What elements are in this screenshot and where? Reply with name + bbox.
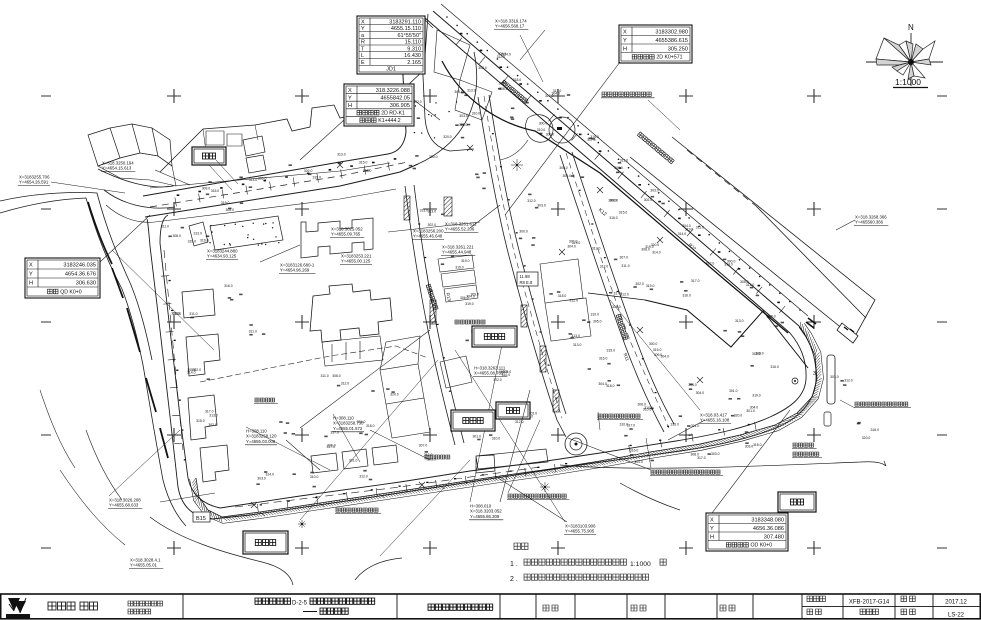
svg-text:X: X bbox=[29, 263, 33, 269]
svg-text:4655.15.110: 4655.15.110 bbox=[391, 26, 421, 32]
svg-text:310.0: 310.0 bbox=[492, 436, 501, 440]
svg-text:302.0: 302.0 bbox=[478, 66, 487, 70]
svg-text:X=3183255.706: X=3183255.706 bbox=[19, 174, 50, 179]
svg-text:Y: Y bbox=[361, 26, 365, 32]
svg-text:312.0: 312.0 bbox=[359, 475, 368, 479]
svg-text:X=3183258.120: X=3183258.120 bbox=[246, 434, 277, 439]
svg-text:LS-22: LS-22 bbox=[948, 613, 965, 619]
svg-text:2017.12: 2017.12 bbox=[945, 600, 967, 606]
svg-text:319.0: 319.0 bbox=[545, 94, 554, 98]
svg-text:R: R bbox=[361, 40, 365, 46]
svg-text:Y=4656.568.17: Y=4656.568.17 bbox=[495, 24, 525, 29]
svg-text:3183348.080: 3183348.080 bbox=[751, 517, 784, 523]
svg-text:311.0: 311.0 bbox=[691, 424, 699, 428]
svg-text:Y=4654.26.591: Y=4654.26.591 bbox=[19, 180, 49, 185]
svg-text:H=308.110: H=308.110 bbox=[333, 415, 354, 420]
svg-text:X: X bbox=[348, 88, 352, 94]
svg-text:H: H bbox=[710, 534, 714, 540]
svg-text:308.0: 308.0 bbox=[559, 166, 568, 170]
svg-text:316.0: 316.0 bbox=[770, 365, 779, 369]
svg-text:X: X bbox=[710, 517, 714, 523]
svg-text:Y: Y bbox=[348, 95, 352, 101]
svg-text:318.0: 318.0 bbox=[459, 123, 468, 127]
svg-text:318.3226.088: 318.3226.088 bbox=[376, 88, 410, 94]
svg-text:11.98: 11.98 bbox=[520, 274, 531, 279]
svg-text:310.0: 310.0 bbox=[752, 352, 761, 356]
svg-text:Y=4655.86.309: Y=4655.86.309 bbox=[470, 514, 500, 519]
svg-text:302.0: 302.0 bbox=[304, 169, 313, 173]
svg-text:311.0: 311.0 bbox=[321, 374, 329, 378]
svg-text:4655386.615: 4655386.615 bbox=[655, 38, 688, 44]
svg-text:K1+444.2: K1+444.2 bbox=[378, 118, 400, 124]
svg-text:X=318.3268.366: X=318.3268.366 bbox=[855, 214, 887, 219]
svg-text:319.0: 319.0 bbox=[752, 393, 761, 397]
svg-text:H=308.010: H=308.010 bbox=[470, 503, 492, 508]
svg-text:307.0: 307.0 bbox=[419, 443, 428, 447]
svg-text:313.0: 313.0 bbox=[735, 319, 744, 323]
svg-text:305.0: 305.0 bbox=[740, 280, 749, 284]
svg-text:1:1000: 1:1000 bbox=[895, 77, 921, 87]
svg-text:2: 2 bbox=[510, 576, 514, 583]
svg-text:320.0: 320.0 bbox=[443, 135, 452, 139]
svg-text:313.0: 313.0 bbox=[620, 158, 629, 162]
svg-text:306.0: 306.0 bbox=[638, 403, 647, 407]
svg-text:X: X bbox=[623, 29, 627, 35]
svg-text:320.0: 320.0 bbox=[734, 414, 743, 418]
svg-text:310.0: 310.0 bbox=[591, 313, 600, 317]
svg-text:309.0: 309.0 bbox=[202, 187, 211, 191]
svg-text:315.0: 315.0 bbox=[196, 419, 205, 423]
svg-text:4654.36.676: 4654.36.676 bbox=[65, 272, 96, 278]
svg-text:316.0: 316.0 bbox=[630, 449, 639, 453]
svg-text:303.0: 303.0 bbox=[257, 476, 266, 480]
svg-text:302.0: 302.0 bbox=[635, 282, 644, 286]
svg-text:319.0: 319.0 bbox=[188, 239, 197, 243]
svg-text:X=3183258.730: X=3183258.730 bbox=[333, 421, 364, 426]
svg-text:310.0: 310.0 bbox=[310, 475, 319, 479]
svg-text:316.0: 316.0 bbox=[599, 356, 608, 360]
svg-text:319.0: 319.0 bbox=[200, 239, 209, 243]
svg-text:302.0: 302.0 bbox=[428, 223, 437, 227]
svg-text:X=318.3028.4.1: X=318.3028.4.1 bbox=[130, 557, 161, 562]
svg-text:319.0: 319.0 bbox=[645, 245, 654, 249]
svg-text:312.0: 312.0 bbox=[706, 261, 715, 265]
svg-text:308.0: 308.0 bbox=[363, 169, 372, 173]
svg-text:Y=4655.01.572: Y=4655.01.572 bbox=[333, 426, 363, 431]
svg-text:319.0: 319.0 bbox=[221, 201, 230, 205]
svg-text:316.0: 316.0 bbox=[609, 216, 618, 220]
svg-text:307.0: 307.0 bbox=[620, 256, 629, 260]
svg-text:314.0: 314.0 bbox=[678, 232, 687, 236]
svg-text:315.0: 315.0 bbox=[607, 349, 616, 353]
svg-text:312.0: 312.0 bbox=[341, 381, 350, 385]
svg-text:304.0: 304.0 bbox=[466, 294, 475, 298]
svg-text:318.0: 318.0 bbox=[606, 384, 615, 388]
svg-text:312.0: 312.0 bbox=[592, 247, 601, 251]
svg-text:303.0: 303.0 bbox=[711, 452, 720, 456]
svg-text:313.0: 313.0 bbox=[573, 343, 582, 347]
svg-text:Y=4655.68.633: Y=4655.68.633 bbox=[109, 503, 139, 508]
svg-text:309.0: 309.0 bbox=[503, 370, 512, 374]
svg-text:311.0: 311.0 bbox=[621, 264, 629, 268]
svg-text:E: E bbox=[361, 60, 365, 66]
svg-text:312.0: 312.0 bbox=[620, 293, 629, 297]
svg-text:303.0: 303.0 bbox=[650, 189, 659, 193]
svg-text:312.0: 312.0 bbox=[844, 378, 853, 382]
svg-text:308.0: 308.0 bbox=[332, 374, 341, 378]
svg-text:300.0: 300.0 bbox=[519, 229, 528, 233]
svg-text:319.0: 319.0 bbox=[455, 266, 464, 270]
svg-text:316.0: 316.0 bbox=[682, 293, 691, 297]
svg-text:JD1: JD1 bbox=[386, 67, 396, 73]
svg-text:4655842.05: 4655842.05 bbox=[380, 95, 410, 101]
svg-text:Y=4655.09.765: Y=4655.09.765 bbox=[331, 232, 361, 237]
svg-text:1:1000: 1:1000 bbox=[630, 561, 651, 568]
svg-text:X=318.3025.052: X=318.3025.052 bbox=[331, 226, 363, 231]
svg-text:317.0: 317.0 bbox=[587, 138, 596, 142]
svg-text:319.0: 319.0 bbox=[313, 175, 322, 179]
svg-text:3183291.110: 3183291.110 bbox=[389, 19, 421, 25]
svg-text:301.0: 301.0 bbox=[746, 409, 755, 413]
svg-text:301.0: 301.0 bbox=[349, 459, 358, 463]
svg-text:312.0: 312.0 bbox=[600, 264, 609, 268]
svg-text:310.0: 310.0 bbox=[620, 423, 629, 427]
svg-text:304.0: 304.0 bbox=[634, 460, 643, 464]
svg-text:3183246.035: 3183246.035 bbox=[63, 263, 96, 269]
svg-text:310.0: 310.0 bbox=[472, 112, 481, 116]
svg-text:Y=4655.46.648: Y=4655.46.648 bbox=[413, 234, 443, 239]
svg-text:305.250: 305.250 bbox=[668, 46, 688, 52]
svg-text:2D K0+571: 2D K0+571 bbox=[656, 55, 682, 61]
svg-text:318.0: 318.0 bbox=[173, 312, 182, 316]
svg-text:QD K0+0: QD K0+0 bbox=[60, 289, 82, 295]
svg-text:304.0: 304.0 bbox=[567, 245, 576, 249]
svg-text:301.0: 301.0 bbox=[473, 435, 482, 439]
svg-text:303.0: 303.0 bbox=[830, 375, 839, 379]
svg-text:X=3183126.680-1: X=3183126.680-1 bbox=[280, 262, 315, 267]
svg-text:308.0: 308.0 bbox=[173, 234, 182, 238]
svg-text:301.0: 301.0 bbox=[729, 389, 738, 393]
svg-text:304.0: 304.0 bbox=[696, 391, 705, 395]
svg-text:320.0: 320.0 bbox=[862, 436, 871, 440]
svg-text:H=318.3263.111: H=318.3263.111 bbox=[474, 365, 506, 370]
svg-text:300.0: 300.0 bbox=[429, 155, 438, 159]
svg-text:X=3183103.906: X=3183103.906 bbox=[565, 523, 596, 528]
svg-text:X=318.3319.174: X=318.3319.174 bbox=[495, 18, 527, 23]
svg-text:304.0: 304.0 bbox=[661, 355, 670, 359]
svg-text:302.0: 302.0 bbox=[208, 423, 217, 427]
svg-text:2.165: 2.165 bbox=[407, 60, 421, 66]
svg-text:Y=4654.15.613: Y=4654.15.613 bbox=[102, 166, 132, 171]
svg-text:B15: B15 bbox=[196, 516, 206, 522]
svg-text:318.0: 318.0 bbox=[366, 424, 375, 428]
svg-text:X=318.3026.208: X=318.3026.208 bbox=[109, 497, 141, 502]
svg-text:H: H bbox=[29, 281, 33, 287]
svg-text:H: H bbox=[348, 103, 352, 109]
svg-text:1: 1 bbox=[510, 561, 514, 568]
svg-text:318.0: 318.0 bbox=[558, 294, 567, 298]
svg-text:Y=4654.96.269: Y=4654.96.269 bbox=[280, 268, 310, 273]
svg-text:Y: Y bbox=[623, 38, 627, 44]
svg-text:300.0: 300.0 bbox=[539, 122, 548, 126]
svg-text:X=318.03.417: X=318.03.417 bbox=[700, 412, 727, 417]
svg-text:300.0: 300.0 bbox=[727, 260, 736, 264]
svg-text:317.0: 317.0 bbox=[330, 431, 339, 435]
svg-text:316.0: 316.0 bbox=[224, 284, 233, 288]
svg-text:302.0: 302.0 bbox=[644, 198, 653, 202]
svg-text:9.310: 9.310 bbox=[407, 46, 421, 52]
svg-text:311.0: 311.0 bbox=[189, 312, 197, 316]
svg-text:303.0: 303.0 bbox=[537, 203, 546, 207]
svg-text:312.0: 312.0 bbox=[515, 420, 524, 424]
svg-text:315.0: 315.0 bbox=[753, 443, 762, 447]
svg-text:310.0: 310.0 bbox=[537, 128, 546, 132]
svg-text:L: L bbox=[361, 53, 364, 59]
svg-text:X=4655.08.765: X=4655.08.765 bbox=[474, 371, 504, 376]
svg-text:307.480: 307.480 bbox=[764, 534, 784, 540]
svg-text:306.905: 306.905 bbox=[390, 103, 410, 109]
svg-text:303.0: 303.0 bbox=[745, 444, 754, 448]
svg-text:302.0: 302.0 bbox=[493, 378, 502, 382]
svg-text:314.0: 314.0 bbox=[249, 178, 258, 182]
svg-text:OD K0+0: OD K0+0 bbox=[751, 543, 773, 549]
svg-text:Y: Y bbox=[29, 272, 33, 278]
svg-text:319.0: 319.0 bbox=[461, 259, 470, 263]
svg-text:314.0: 314.0 bbox=[266, 472, 275, 476]
svg-text:XFB-2017-G14: XFB-2017-G14 bbox=[849, 600, 890, 606]
svg-text:15.110: 15.110 bbox=[405, 40, 421, 46]
svg-text:Y=4655.44.948: Y=4655.44.948 bbox=[442, 250, 472, 255]
svg-text:300.0: 300.0 bbox=[614, 166, 623, 170]
svg-text:Y=465560.366: Y=465560.366 bbox=[855, 220, 884, 225]
svg-text:313.0: 313.0 bbox=[428, 209, 437, 213]
svg-text:313.0: 313.0 bbox=[209, 414, 218, 418]
svg-text:2D RD-K1: 2D RD-K1 bbox=[381, 110, 405, 116]
svg-text:309.0: 309.0 bbox=[454, 90, 463, 94]
svg-text:313.0: 313.0 bbox=[467, 89, 476, 93]
svg-text:X=3183253.221: X=3183253.221 bbox=[341, 253, 372, 258]
svg-text:N: N bbox=[908, 23, 914, 32]
svg-text:61°55'50": 61°55'50" bbox=[397, 33, 421, 39]
svg-text:311.0: 311.0 bbox=[696, 225, 704, 229]
svg-text:X=318.3203.052: X=318.3203.052 bbox=[470, 509, 502, 514]
svg-text:305.0: 305.0 bbox=[593, 320, 602, 324]
svg-text:X=318.3261.221: X=318.3261.221 bbox=[442, 244, 474, 249]
svg-text:302.0: 302.0 bbox=[193, 368, 202, 372]
svg-text:306.630: 306.630 bbox=[76, 281, 96, 287]
svg-text:320.0: 320.0 bbox=[390, 392, 399, 396]
svg-text:315.0: 315.0 bbox=[359, 160, 368, 164]
svg-text:319.0: 319.0 bbox=[465, 302, 474, 306]
svg-text:H=308.110: H=308.110 bbox=[246, 428, 267, 433]
svg-text:317.0: 317.0 bbox=[691, 279, 700, 283]
svg-text:313.0: 313.0 bbox=[337, 153, 346, 157]
svg-text:303.0: 303.0 bbox=[459, 114, 468, 118]
svg-text:Y=4655.05.01: Y=4655.05.01 bbox=[130, 563, 157, 568]
svg-text:314.0: 314.0 bbox=[652, 250, 661, 254]
svg-text:H: H bbox=[623, 46, 627, 52]
svg-text:319.0: 319.0 bbox=[572, 241, 581, 245]
svg-text:304.0: 304.0 bbox=[608, 199, 617, 203]
svg-text:Y=4655.03.008: Y=4655.03.008 bbox=[246, 439, 276, 444]
svg-text:Y: Y bbox=[710, 526, 714, 532]
svg-text:315.0: 315.0 bbox=[211, 189, 220, 193]
svg-text:X=3183244.880: X=3183244.880 bbox=[207, 248, 238, 253]
svg-text:311.0: 311.0 bbox=[161, 224, 169, 228]
svg-text:300.0: 300.0 bbox=[649, 342, 658, 346]
svg-text:309.0: 309.0 bbox=[563, 174, 572, 178]
svg-text:316.0: 316.0 bbox=[671, 422, 680, 426]
svg-text:319.0: 319.0 bbox=[612, 305, 621, 309]
svg-text:Y=4634.93.125: Y=4634.93.125 bbox=[207, 254, 237, 259]
svg-text:310.0: 310.0 bbox=[644, 406, 653, 410]
svg-text:Y=4655.75.905: Y=4655.75.905 bbox=[565, 529, 595, 534]
svg-text:R8 E.8: R8 E.8 bbox=[520, 280, 533, 285]
svg-text:3183302.980: 3183302.980 bbox=[655, 29, 688, 35]
svg-text:D-2-5: D-2-5 bbox=[292, 601, 308, 607]
svg-text:317.0: 317.0 bbox=[327, 445, 336, 449]
svg-text:Y=4655.00.125: Y=4655.00.125 bbox=[341, 259, 371, 264]
svg-text:314.0: 314.0 bbox=[502, 52, 511, 56]
svg-text:311.0: 311.0 bbox=[249, 329, 257, 333]
svg-text:X=318.3250.194: X=318.3250.194 bbox=[102, 160, 134, 165]
svg-text:303.0: 303.0 bbox=[546, 133, 555, 137]
svg-text:4656.36.086: 4656.36.086 bbox=[753, 526, 784, 532]
svg-text:319.0: 319.0 bbox=[653, 348, 662, 352]
svg-text:3: 3 bbox=[813, 371, 816, 377]
svg-text:319.0: 319.0 bbox=[646, 284, 655, 288]
svg-text:305.0: 305.0 bbox=[258, 177, 267, 181]
svg-text:319.0: 319.0 bbox=[685, 228, 694, 232]
svg-text:312.0: 312.0 bbox=[570, 298, 579, 302]
svg-text:318.0: 318.0 bbox=[513, 78, 522, 82]
svg-text:313.0: 313.0 bbox=[194, 232, 203, 236]
svg-text:16.430: 16.430 bbox=[404, 53, 421, 59]
svg-text:315.0: 315.0 bbox=[619, 210, 628, 214]
svg-text:X: X bbox=[361, 19, 365, 25]
svg-text:312.0: 312.0 bbox=[527, 199, 536, 203]
svg-text:316.0: 316.0 bbox=[871, 428, 880, 432]
svg-text:317.0: 317.0 bbox=[697, 456, 706, 460]
